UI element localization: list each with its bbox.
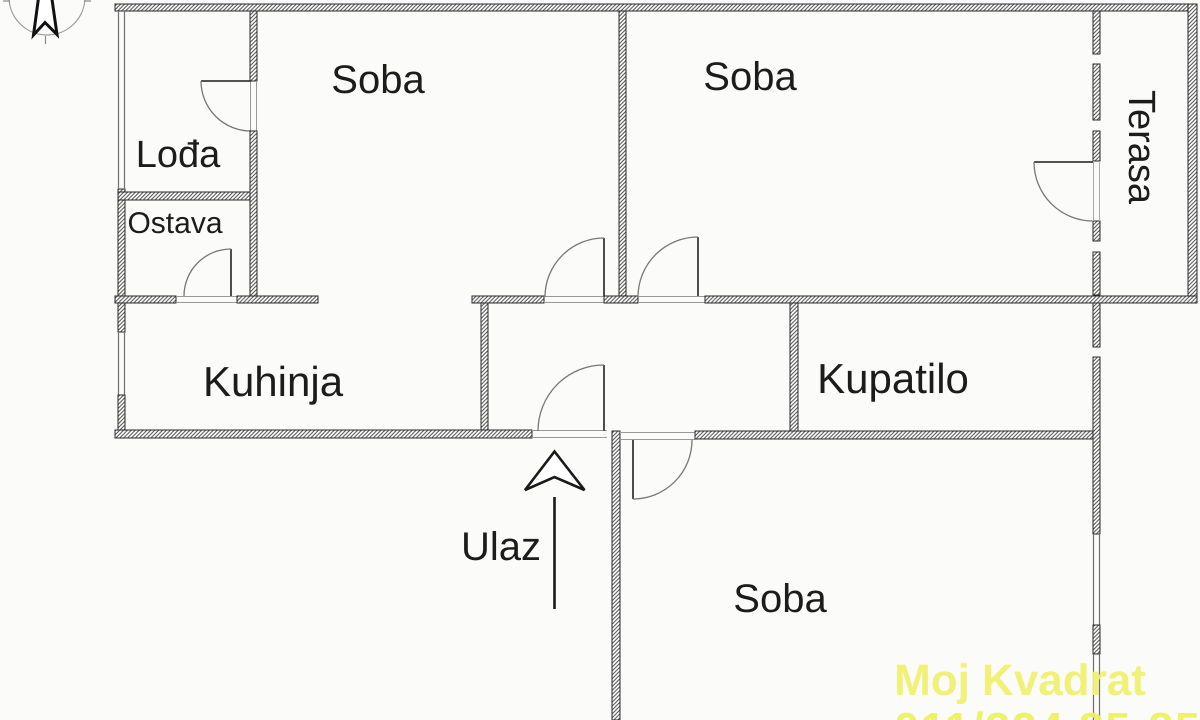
svg-text:Kupatilo: Kupatilo [817,355,969,402]
svg-text:Soba: Soba [733,577,827,621]
svg-text:Ulaz: Ulaz [461,525,541,569]
svg-text:Ostava: Ostava [127,207,222,240]
svg-text:Terasa: Terasa [1120,90,1162,205]
svg-text:Soba: Soba [331,58,425,102]
svg-text:011/324 85-85: 011/324 85-85 [894,703,1200,720]
svg-text:Soba: Soba [703,55,797,99]
svg-text:Moj Kvadrat: Moj Kvadrat [894,656,1146,705]
svg-text:Lođa: Lođa [136,134,221,176]
svg-text:Kuhinja: Kuhinja [203,358,344,405]
